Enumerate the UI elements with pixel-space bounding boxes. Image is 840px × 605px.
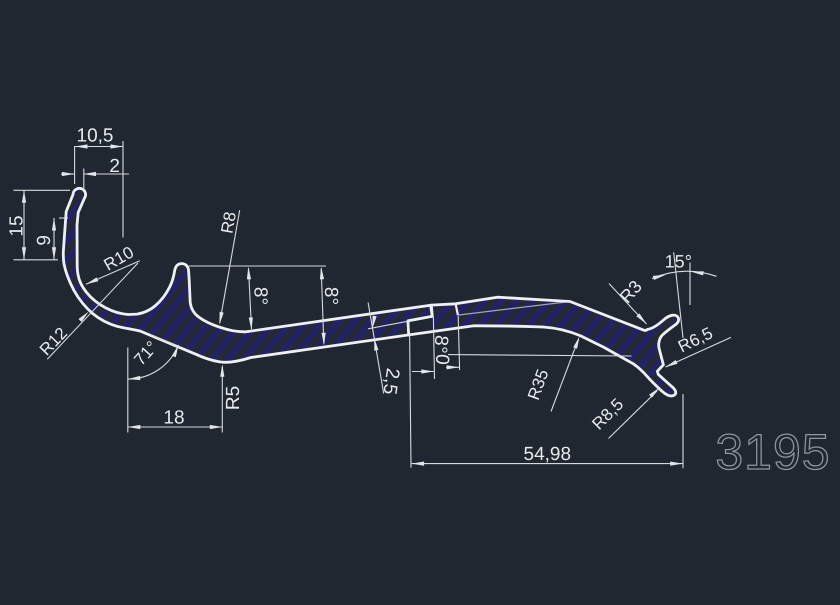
- svg-text:9: 9: [34, 235, 55, 246]
- svg-text:18: 18: [163, 408, 184, 429]
- svg-text:2,5: 2,5: [379, 367, 403, 396]
- svg-text:8°: 8°: [249, 287, 270, 305]
- svg-text:54,98: 54,98: [524, 444, 572, 465]
- svg-text:R5: R5: [223, 386, 244, 410]
- svg-text:R8: R8: [217, 210, 239, 235]
- svg-text:2: 2: [109, 156, 120, 177]
- svg-text:3195: 3195: [715, 424, 830, 480]
- svg-text:15°: 15°: [665, 252, 692, 272]
- svg-text:15: 15: [7, 215, 28, 236]
- svg-text:8°: 8°: [320, 287, 341, 305]
- svg-text:10,5: 10,5: [77, 126, 114, 147]
- svg-text:8°: 8°: [429, 334, 452, 354]
